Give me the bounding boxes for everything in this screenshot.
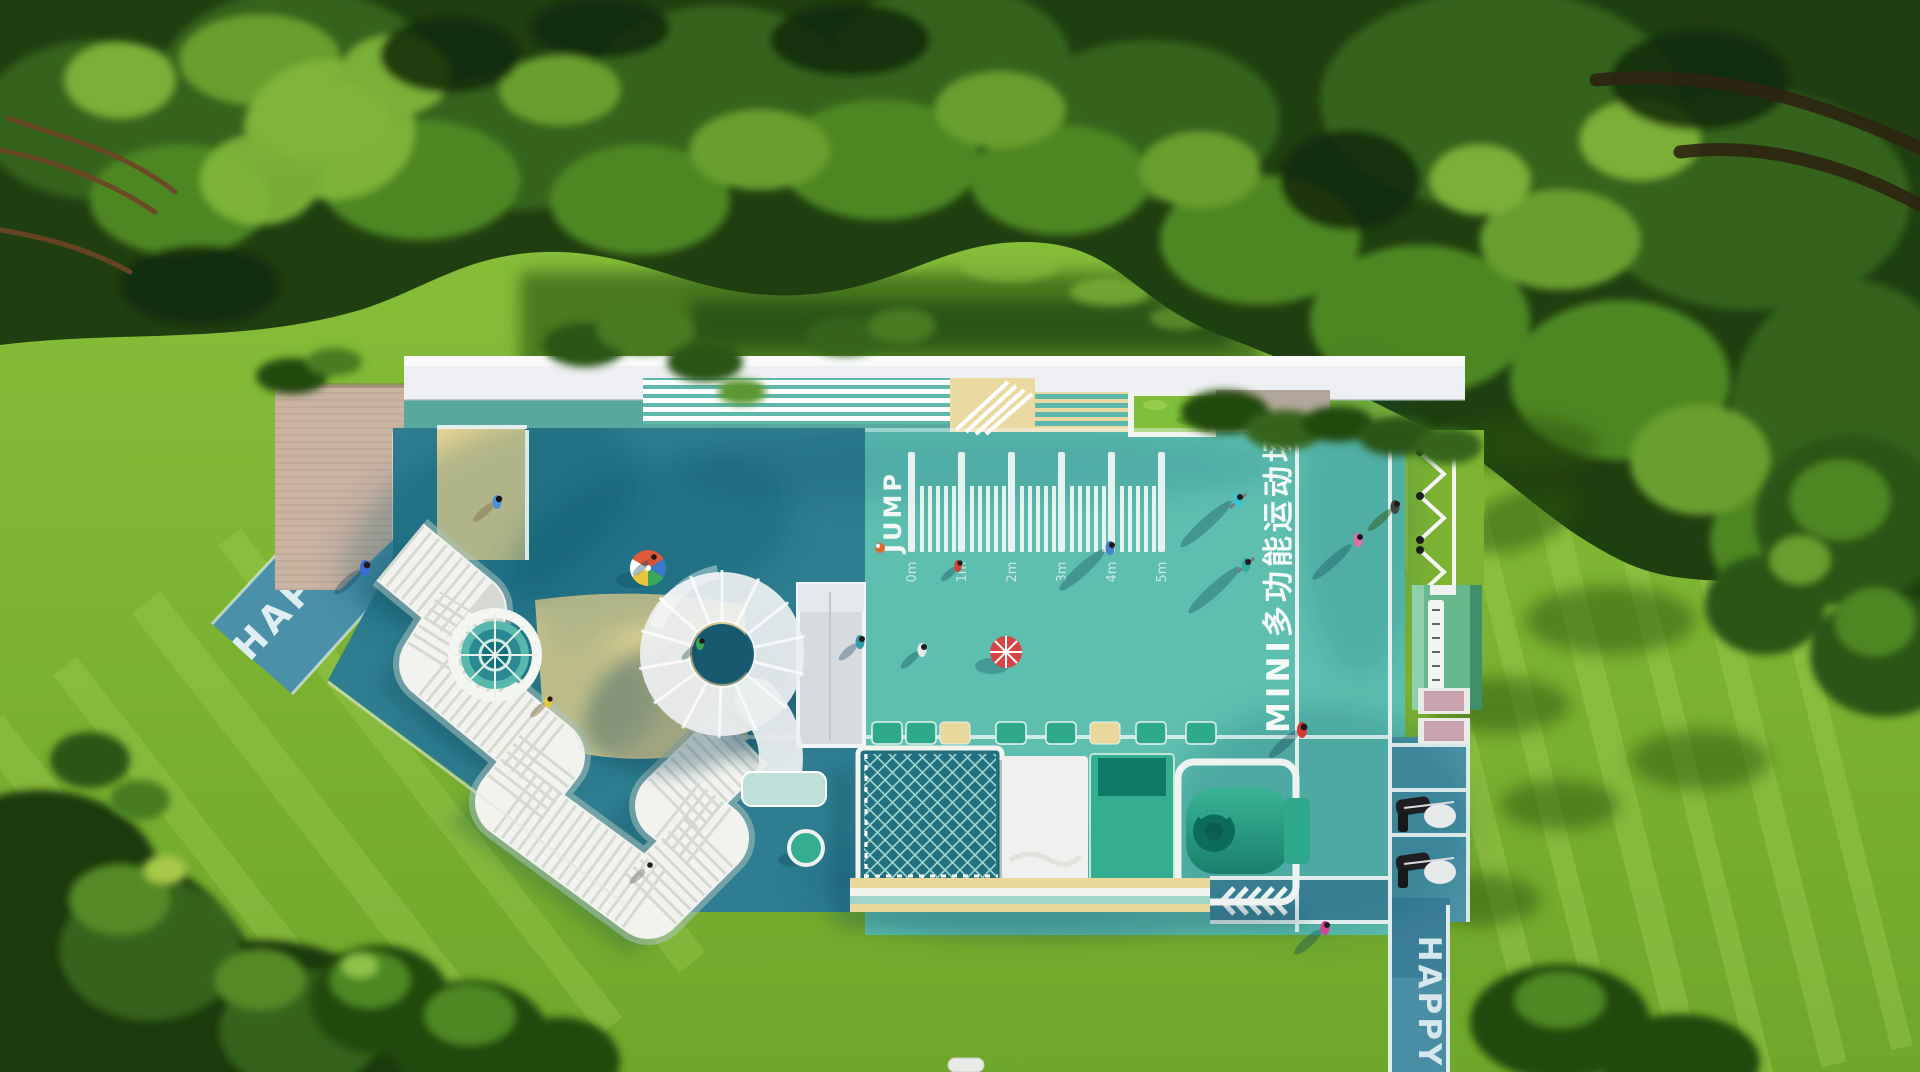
bottom-edge-object [948,1058,984,1072]
ruler-mark-2m: 2m [1005,562,1020,583]
exit-path: HAPPY [1388,898,1450,1072]
ring-climber [453,613,537,697]
striped-mat [850,878,1210,912]
court-title: MINI多功能运动场 [1261,427,1297,733]
happy-exit-text: HAPPY [1411,936,1447,1069]
ruler-mark-0m: 0m [905,562,920,583]
slide-landing-pad [742,772,826,806]
toy-ball [875,543,885,553]
jump-text: JUMP [879,471,907,555]
climbing-net-box [858,748,1002,884]
ruler-mark-5m: 5m [1155,562,1170,583]
playground-aerial-render: HAPPY HAPPY [0,0,1920,1072]
ruler-mark-4m: 4m [1105,562,1120,583]
